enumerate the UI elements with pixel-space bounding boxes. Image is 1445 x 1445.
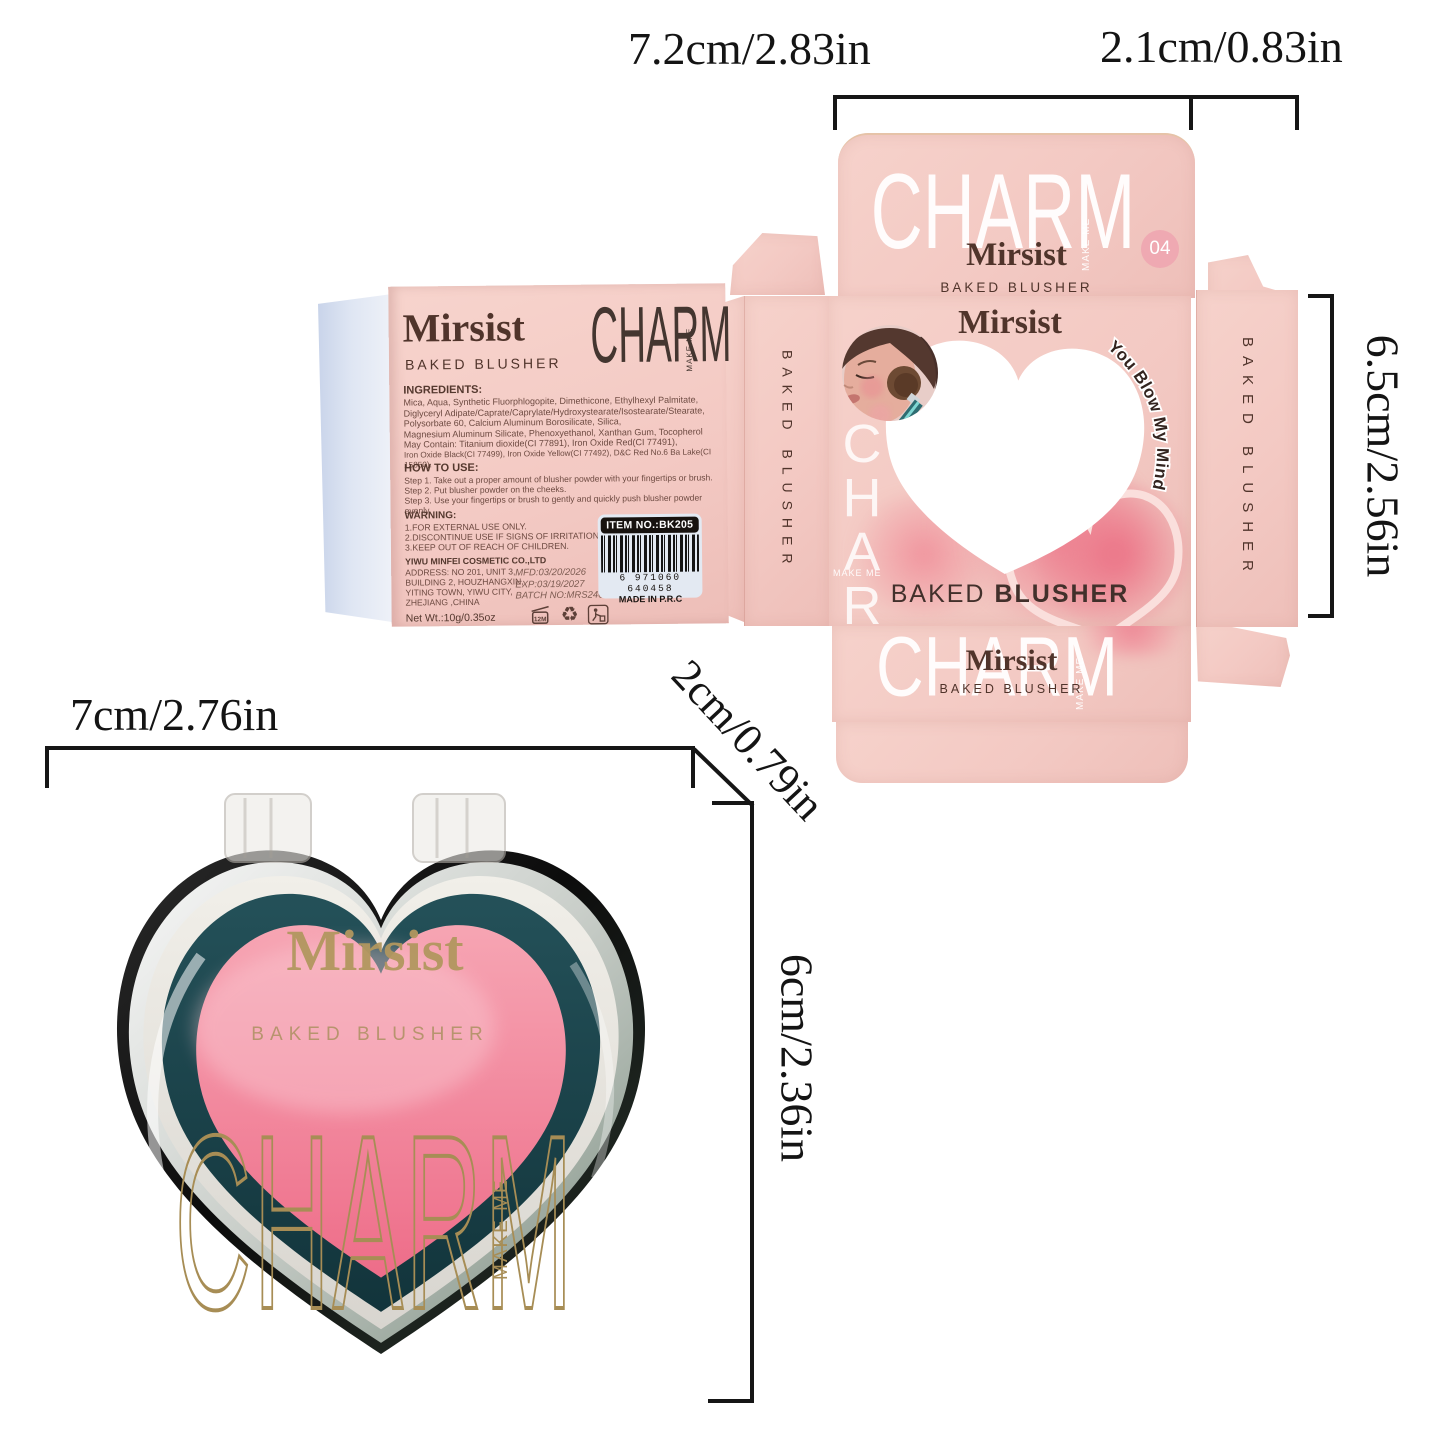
how-to-use-title: HOW TO USE: [404,462,478,475]
product-dimension-image: 7.2cm/2.83in 2.1cm/0.83in 6.5cm/2.56in C… [0,0,1445,1445]
period-after-opening-text: 12M [534,616,547,623]
made-in: MADE IN P.R.C [601,594,699,605]
address-line: ZHEJIANG ,CHINA [405,596,525,607]
product-name: BAKED BLUSHER [405,355,562,373]
product-name: BAKED BLUSHER [838,280,1195,295]
dieline-left-side-panel: BAKED BLUSHER [744,296,830,626]
warning-title: WARNING: [405,510,457,522]
top-dimension-line [833,95,1299,99]
dieline-right-side-panel: BAKED BLUSHER [1196,290,1298,627]
tagline-text: You Blow My Mind. [829,296,1172,492]
manufacturer: YIWU MINFEI COSMETIC CO.,LTD [405,555,546,566]
box-height-tick-bottom [1308,614,1334,618]
box-height-tick-top [1308,294,1334,298]
compact-width-label: 7cm/2.76in [70,688,278,741]
product-name: BAKED BLUSHER [832,682,1191,696]
item-number: ITEM NO.:BK205 [601,517,699,534]
barcode-sticker: ITEM NO.:BK205 6 971060 640458 MADE IN P… [598,514,703,599]
dieline-front-panel: CHARM MAKE ME [829,296,1191,626]
compact-height-label: 6cm/2.36in [771,954,824,1162]
box-width-label: 7.2cm/2.83in [628,22,871,75]
top-dimension-tick-middle [1189,95,1193,130]
compact-height-line [750,801,754,1403]
box-3d-photo: Mirsist BAKED BLUSHER CHARM MAKE ME INGR… [318,282,728,628]
address-line: YITING TOWN, YIWU CITY, [405,586,525,597]
brand-name: Mirsist [832,644,1191,678]
brand-name-imprint: Mirsist [286,918,464,983]
barcode [601,535,699,573]
box-depth-label: 2.1cm/0.83in [1100,20,1343,73]
dieline-top-flap: CHARM MAKE ME Mirsist BAKED BLUSHER 04 [838,133,1195,298]
make-me-label: MAKE ME [685,320,695,372]
net-weight: Net Wt.:10g/0.35oz [406,612,496,625]
hinge-tab-right [413,794,505,862]
top-dimension-tick-right [1295,95,1299,130]
period-after-opening-icon: 12M [530,605,552,625]
charm-logo: CHARM [590,290,675,382]
make-me-imprint: MAKE ME [491,1178,512,1280]
box-side-face [318,294,392,622]
tagline-arc: You Blow My Mind. [829,296,1191,626]
side-panel-product-name: BAKED BLUSHER [780,350,796,571]
box-back-panel: Mirsist BAKED BLUSHER CHARM MAKE ME INGR… [388,283,729,627]
barcode-digits: 6 971060 640458 [601,572,699,595]
dieline-tab-top-left [730,233,825,295]
ingredients-title: INGREDIENTS: [403,384,482,397]
dieline-tab-bottom-right [1196,617,1290,687]
brand-name: Mirsist [402,303,525,351]
shade-number-badge: 04 [1141,230,1179,268]
box-height-label: 6.5cm/2.56in [1357,335,1410,578]
product-name-imprint: BAKED BLUSHER [251,1024,488,1045]
compact-width-line [45,746,695,750]
hinge-tab-left [225,794,311,862]
tidyman-icon [588,604,609,624]
charm-logo-imprint: CHARM [175,1084,575,1361]
compact-width-tick-left [45,746,49,788]
compact-height-tick-bottom [708,1399,754,1403]
top-dimension-tick-left [833,95,837,130]
dieline-bottom-flap: CHARM MAKE ME Mirsist BAKED BLUSHER [832,626,1191,722]
box-height-line [1330,294,1334,618]
svg-text:You Blow My Mind.: You Blow My Mind. [829,296,1172,492]
recycle-icon: ♻ [561,605,579,625]
compact-height-tick-top [712,801,754,805]
side-panel-product-name: BAKED BLUSHER [1239,337,1256,580]
dieline-bottom-tuck-flap [836,722,1188,783]
compact-photo: Mirsist BAKED BLUSHER CHARM MAKE ME [75,788,687,1400]
